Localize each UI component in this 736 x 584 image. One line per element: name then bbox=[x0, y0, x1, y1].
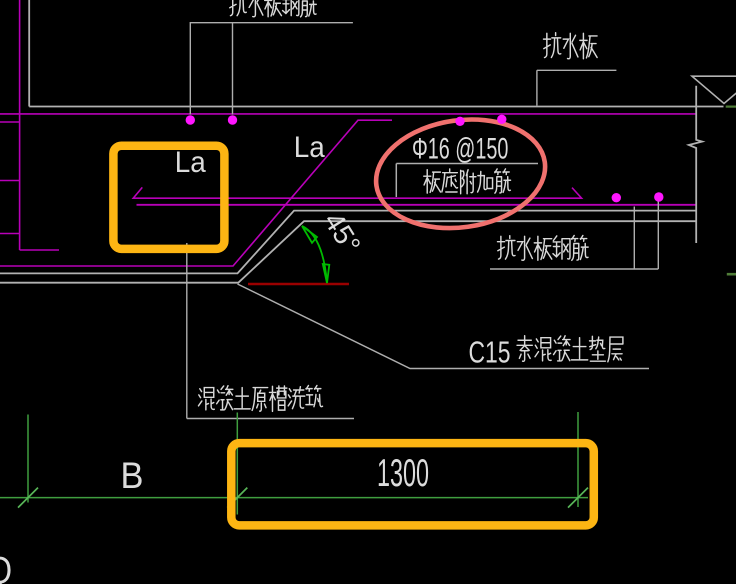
svg-text:Q: Q bbox=[0, 550, 12, 584]
svg-text:Φ16 @150: Φ16 @150 bbox=[412, 132, 508, 165]
svg-text:La: La bbox=[294, 131, 326, 164]
svg-text:B: B bbox=[121, 455, 144, 496]
svg-text:C15: C15 bbox=[469, 334, 511, 369]
svg-text:1300: 1300 bbox=[377, 451, 429, 495]
svg-text:La: La bbox=[175, 146, 207, 179]
